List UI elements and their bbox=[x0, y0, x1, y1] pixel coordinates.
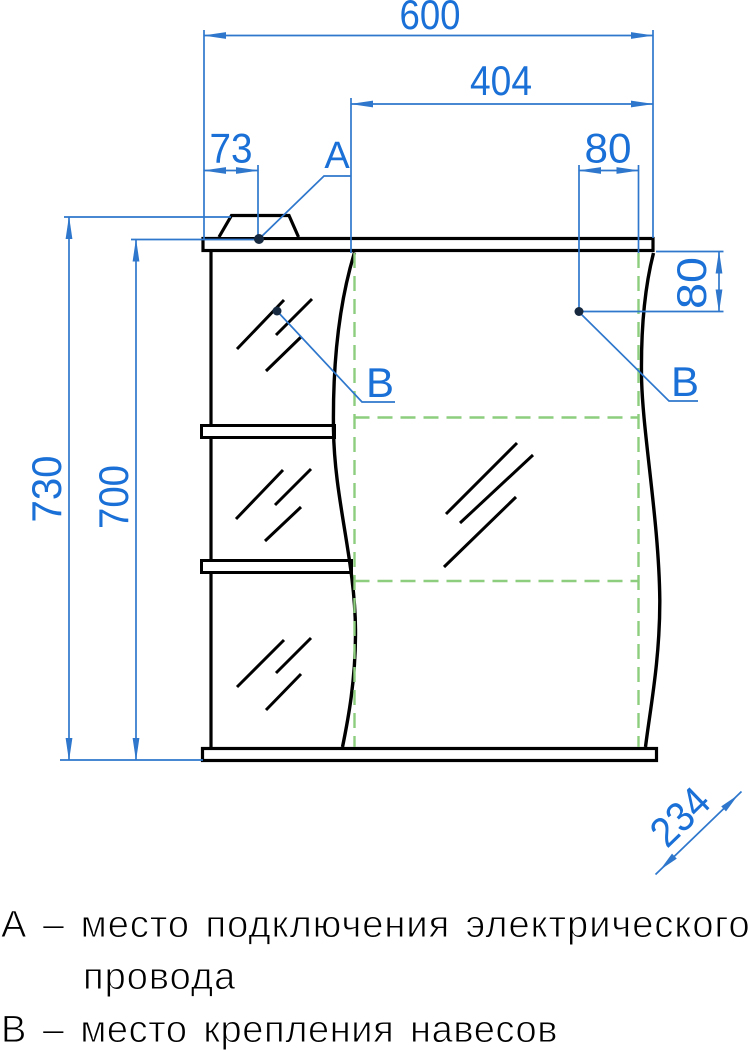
svg-text:А – место подключения электрич: А – место подключения электрического bbox=[1, 904, 750, 946]
svg-text:73: 73 bbox=[210, 125, 253, 172]
svg-text:80: 80 bbox=[668, 257, 715, 309]
svg-text:404: 404 bbox=[470, 57, 532, 104]
svg-text:80: 80 bbox=[585, 125, 632, 172]
svg-text:провода: провода bbox=[83, 956, 236, 998]
svg-text:600: 600 bbox=[400, 0, 461, 38]
svg-text:700: 700 bbox=[90, 465, 137, 529]
svg-text:730: 730 bbox=[23, 456, 70, 523]
svg-text:B: B bbox=[671, 358, 699, 405]
svg-text:B: B bbox=[366, 359, 394, 406]
svg-text:В – место крепления навесов: В – место крепления навесов bbox=[1, 1009, 558, 1050]
svg-text:A: A bbox=[324, 135, 350, 177]
